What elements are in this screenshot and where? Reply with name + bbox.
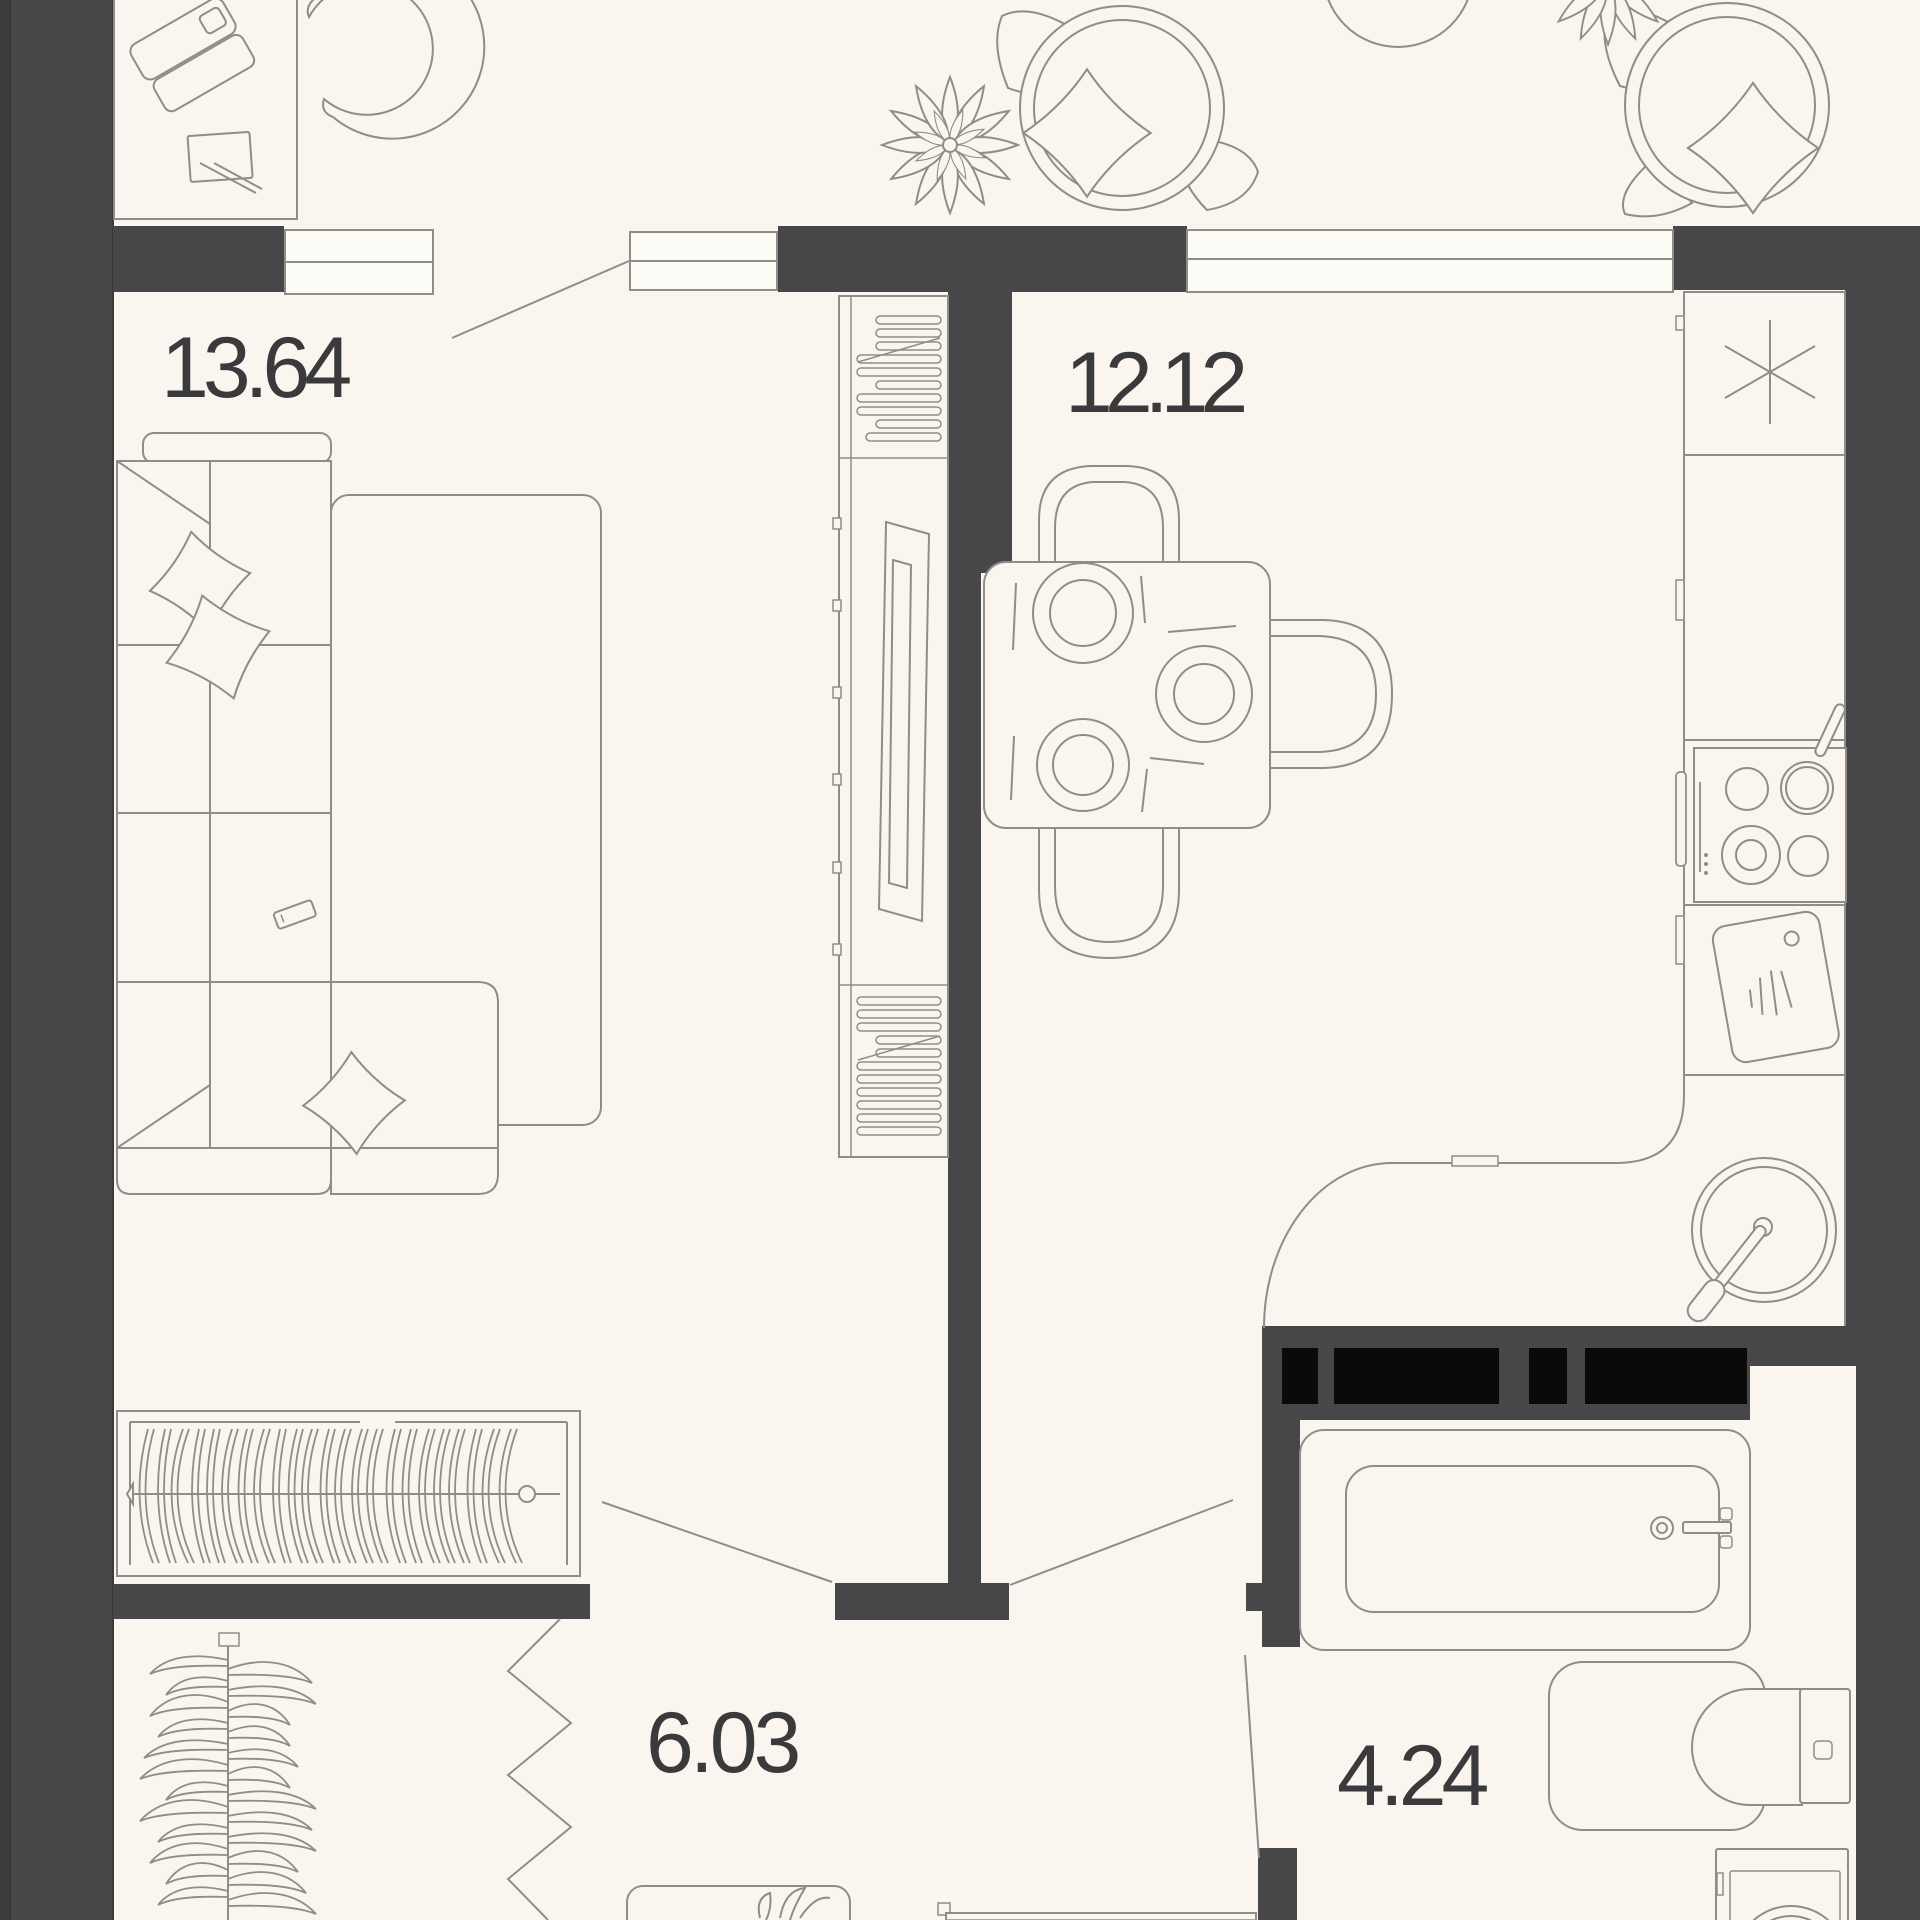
- svg-text:13.64: 13.64: [161, 320, 350, 416]
- svg-text:4.24: 4.24: [1337, 1728, 1488, 1824]
- svg-text:6.03: 6.03: [646, 1695, 799, 1791]
- svg-text:12.12: 12.12: [1065, 335, 1244, 431]
